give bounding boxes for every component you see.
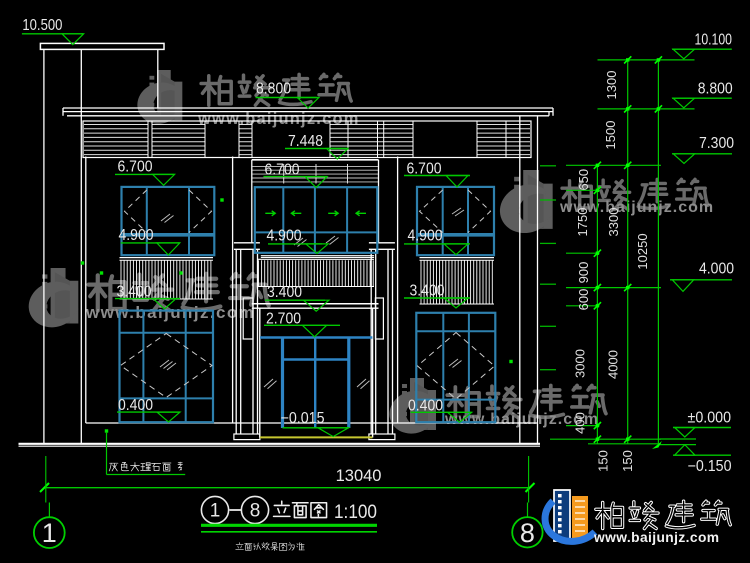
svg-text:900: 900 bbox=[576, 262, 591, 284]
svg-text:650: 650 bbox=[576, 169, 591, 191]
svg-text:10.500: 10.500 bbox=[22, 17, 62, 34]
svg-text:8.800: 8.800 bbox=[698, 81, 733, 98]
svg-text:13040: 13040 bbox=[336, 467, 382, 485]
svg-text:www.baijunjz.com: www.baijunjz.com bbox=[85, 303, 255, 322]
svg-text:−0.015: −0.015 bbox=[281, 410, 325, 427]
svg-text:4000: 4000 bbox=[606, 350, 621, 379]
svg-text:4.900: 4.900 bbox=[408, 228, 443, 245]
svg-text:3000: 3000 bbox=[573, 349, 588, 378]
svg-text:4.000: 4.000 bbox=[699, 261, 734, 278]
svg-text:10250: 10250 bbox=[635, 233, 650, 269]
svg-text:1750: 1750 bbox=[575, 208, 590, 237]
svg-text:6.700: 6.700 bbox=[118, 159, 153, 176]
svg-text:1: 1 bbox=[42, 518, 57, 548]
svg-text:3.400: 3.400 bbox=[267, 284, 302, 301]
svg-text:www.baijunjz.com: www.baijunjz.com bbox=[197, 110, 360, 128]
svg-text:8: 8 bbox=[250, 501, 261, 522]
svg-text:150: 150 bbox=[620, 450, 635, 472]
svg-text:150: 150 bbox=[596, 450, 611, 472]
svg-text:±0.000: ±0.000 bbox=[688, 410, 732, 427]
svg-text:600: 600 bbox=[576, 289, 591, 311]
svg-text:10.100: 10.100 bbox=[695, 32, 733, 49]
svg-text:−0.150: −0.150 bbox=[688, 458, 732, 475]
svg-text:8.800: 8.800 bbox=[256, 80, 291, 97]
svg-text:1:100: 1:100 bbox=[334, 501, 377, 523]
svg-text:3.400: 3.400 bbox=[410, 283, 445, 300]
svg-text:3300: 3300 bbox=[606, 208, 621, 237]
svg-text:1: 1 bbox=[210, 501, 221, 522]
svg-text:7.300: 7.300 bbox=[699, 135, 734, 152]
svg-text:4.900: 4.900 bbox=[119, 227, 154, 244]
svg-text:7.448: 7.448 bbox=[288, 133, 323, 150]
svg-text:1500: 1500 bbox=[603, 121, 618, 150]
svg-text:400: 400 bbox=[573, 412, 588, 434]
svg-text:8: 8 bbox=[520, 518, 535, 548]
svg-text:4.900: 4.900 bbox=[267, 228, 302, 245]
svg-text:www.baijunjz.com: www.baijunjz.com bbox=[593, 530, 719, 545]
svg-text:1300: 1300 bbox=[604, 71, 619, 100]
